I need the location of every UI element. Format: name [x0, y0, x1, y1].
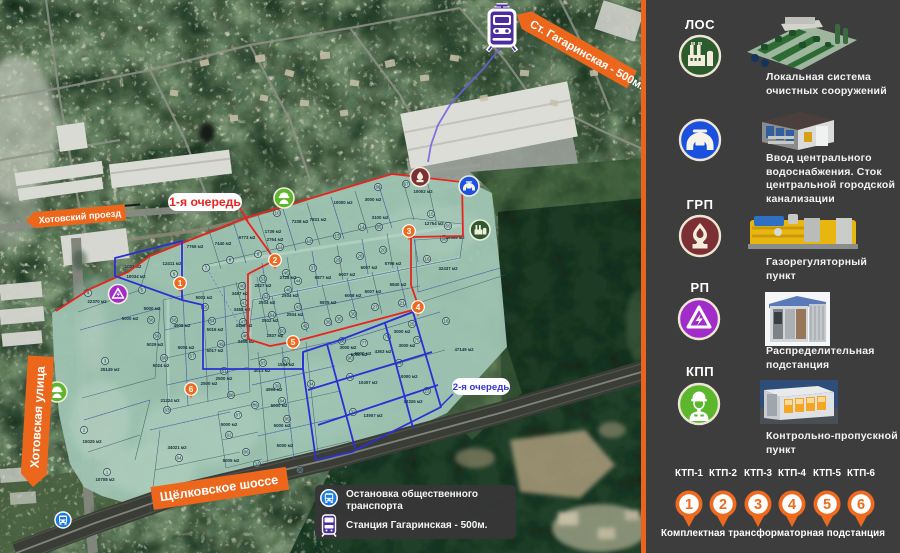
svg-text:3000 м2: 3000 м2: [340, 345, 357, 350]
svg-text:5005 м2: 5005 м2: [223, 458, 240, 463]
svg-text:22370 м2: 22370 м2: [87, 299, 107, 304]
svg-text:77: 77: [361, 341, 367, 346]
svg-text:88: 88: [228, 393, 234, 398]
svg-text:40: 40: [239, 284, 245, 289]
svg-text:5024 м2: 5024 м2: [153, 363, 170, 368]
svg-text:67: 67: [403, 182, 409, 187]
svg-text:66: 66: [375, 185, 381, 190]
svg-text:21: 21: [399, 301, 405, 306]
svg-text:5016 м2: 5016 м2: [207, 327, 224, 332]
svg-text:34021 м2: 34021 м2: [167, 445, 187, 450]
svg-text:2: 2: [83, 428, 86, 433]
svg-text:1-я очередь: 1-я очередь: [169, 195, 241, 209]
svg-text:28: 28: [357, 254, 363, 259]
svg-text:41: 41: [241, 301, 247, 306]
svg-text:3: 3: [754, 497, 762, 513]
svg-text:5001 м2: 5001 м2: [196, 295, 213, 300]
svg-text:3000 м2: 3000 м2: [399, 343, 416, 348]
svg-text:5: 5: [823, 497, 831, 513]
svg-text:5000 м2: 5000 м2: [277, 443, 294, 448]
svg-text:47149 м2: 47149 м2: [454, 347, 474, 352]
svg-text:85: 85: [284, 417, 290, 422]
svg-text:1: 1: [685, 497, 693, 513]
svg-text:10708 м2: 10708 м2: [95, 477, 115, 482]
svg-text:69: 69: [445, 224, 451, 229]
svg-text:2827 м2: 2827 м2: [255, 283, 272, 288]
svg-text:1739 м2: 1739 м2: [265, 229, 282, 234]
svg-text:5: 5: [291, 337, 296, 347]
svg-text:5029 м2: 5029 м2: [147, 342, 164, 347]
svg-text:10034 м2: 10034 м2: [126, 274, 146, 279]
svg-text:56: 56: [171, 318, 177, 323]
svg-text:3457 м2: 3457 м2: [232, 291, 249, 296]
svg-text:5877 м2: 5877 м2: [315, 275, 332, 280]
svg-text:1: 1: [106, 470, 109, 475]
svg-text:5000 м2: 5000 м2: [144, 306, 161, 311]
svg-text:57: 57: [189, 354, 195, 359]
svg-text:5004 м2: 5004 м2: [178, 345, 195, 350]
svg-text:3: 3: [407, 226, 412, 236]
svg-text:2728 м2: 2728 м2: [280, 275, 297, 280]
svg-text:2932 м2: 2932 м2: [262, 318, 279, 323]
svg-text:49: 49: [218, 342, 224, 347]
svg-text:7766 м2: 7766 м2: [187, 244, 204, 249]
svg-text:43: 43: [295, 305, 301, 310]
svg-text:46: 46: [285, 288, 291, 293]
svg-text:5000 м2: 5000 м2: [271, 403, 288, 408]
svg-text:4: 4: [416, 302, 421, 312]
svg-text:5000 м2: 5000 м2: [355, 351, 372, 356]
svg-text:5017 м2: 5017 м2: [207, 348, 224, 353]
svg-text:10: 10: [274, 211, 280, 216]
svg-text:62: 62: [226, 433, 232, 438]
svg-text:18: 18: [443, 319, 449, 324]
svg-text:Станция Гагаринская - 500м.: Станция Гагаринская - 500м.: [346, 520, 488, 531]
svg-text:65: 65: [376, 225, 382, 230]
svg-text:30: 30: [350, 312, 356, 317]
svg-text:7: 7: [205, 266, 208, 271]
svg-text:2934 м2: 2934 м2: [259, 300, 276, 305]
svg-text:37: 37: [310, 266, 316, 271]
svg-text:58: 58: [148, 318, 154, 323]
svg-text:1544 м2: 1544 м2: [278, 362, 295, 367]
svg-text:75: 75: [414, 338, 420, 343]
svg-text:89: 89: [252, 403, 258, 408]
svg-text:3000 м2: 3000 м2: [394, 329, 411, 334]
svg-text:9: 9: [257, 252, 260, 257]
svg-text:12754 м2: 12754 м2: [424, 221, 444, 226]
svg-text:6008 м2: 6008 м2: [345, 293, 362, 298]
svg-text:5840 м2: 5840 м2: [390, 282, 407, 287]
svg-text:15: 15: [428, 212, 434, 217]
svg-text:87: 87: [235, 413, 241, 418]
svg-text:15025 м2: 15025 м2: [82, 439, 102, 444]
svg-text:2-я очередь: 2-я очередь: [453, 382, 510, 393]
svg-text:36: 36: [325, 320, 331, 325]
svg-text:12411 м2: 12411 м2: [163, 261, 182, 266]
svg-text:1: 1: [178, 278, 183, 288]
svg-text:6: 6: [173, 272, 176, 277]
svg-text:21224 м2: 21224 м2: [160, 398, 180, 403]
svg-text:52: 52: [263, 295, 269, 300]
svg-text:3: 3: [104, 359, 107, 364]
svg-text:9773 м2: 9773 м2: [239, 235, 256, 240]
svg-text:38: 38: [297, 468, 303, 473]
svg-text:7238 м2: 7238 м2: [292, 219, 309, 224]
svg-text:6: 6: [189, 384, 194, 394]
svg-text:64: 64: [176, 456, 182, 461]
svg-text:54: 54: [209, 319, 215, 324]
svg-text:20: 20: [380, 248, 386, 253]
svg-text:13: 13: [334, 234, 340, 239]
svg-text:5000 м2: 5000 м2: [122, 316, 139, 321]
svg-text:10002 м2: 10002 м2: [413, 189, 433, 194]
svg-text:6007 м2: 6007 м2: [365, 289, 382, 294]
svg-text:86: 86: [243, 450, 249, 455]
svg-text:60: 60: [161, 356, 167, 361]
svg-text:3458 м2: 3458 м2: [236, 323, 253, 328]
svg-text:59: 59: [154, 334, 160, 339]
svg-text:2934 м2: 2934 м2: [282, 293, 299, 298]
svg-text:34: 34: [308, 382, 314, 387]
svg-text:2500 м2: 2500 м2: [201, 381, 218, 386]
svg-text:5: 5: [141, 288, 144, 293]
svg-text:63: 63: [164, 408, 170, 413]
svg-text:6007 м2: 6007 м2: [361, 265, 378, 270]
svg-text:7440 м2: 7440 м2: [215, 241, 232, 246]
svg-text:2500 м2: 2500 м2: [216, 376, 233, 381]
svg-text:3000 м2: 3000 м2: [365, 197, 382, 202]
svg-text:16: 16: [424, 257, 430, 262]
svg-text:5000 м2: 5000 м2: [274, 423, 291, 428]
svg-text:25: 25: [409, 322, 415, 327]
svg-text:8: 8: [229, 258, 232, 263]
svg-text:53: 53: [260, 277, 266, 282]
svg-text:5796 м2: 5796 м2: [385, 261, 402, 266]
svg-text:2: 2: [719, 497, 727, 513]
svg-text:4908 м2: 4908 м2: [174, 323, 191, 328]
svg-text:5000 м2: 5000 м2: [221, 422, 238, 427]
svg-text:4: 4: [788, 497, 796, 513]
svg-text:10000 м2: 10000 м2: [398, 374, 418, 379]
svg-text:27: 27: [372, 305, 378, 310]
svg-text:25149 м2: 25149 м2: [100, 367, 120, 372]
svg-text:12: 12: [306, 239, 312, 244]
svg-text:7831 м2: 7831 м2: [310, 217, 327, 222]
svg-text:13907 м2: 13907 м2: [363, 413, 383, 418]
svg-text:6: 6: [857, 497, 865, 513]
svg-text:6007 м2: 6007 м2: [339, 272, 356, 277]
svg-text:11: 11: [278, 245, 283, 250]
svg-text:33: 33: [254, 462, 260, 467]
svg-text:2837 м2: 2837 м2: [267, 333, 284, 338]
svg-text:51: 51: [269, 313, 275, 318]
svg-text:10407 м2: 10407 м2: [358, 380, 378, 385]
svg-text:2934 м2: 2934 м2: [287, 312, 304, 317]
svg-text:42: 42: [302, 324, 308, 329]
svg-text:5875 м2: 5875 м2: [320, 300, 337, 305]
svg-text:3100 м2: 3100 м2: [372, 215, 389, 220]
svg-text:транспорта: транспорта: [346, 501, 403, 512]
svg-text:32437 м2: 32437 м2: [438, 266, 458, 271]
svg-text:4998 м2: 4998 м2: [266, 387, 283, 392]
svg-text:4363 м2: 4363 м2: [375, 349, 392, 354]
svg-text:83: 83: [260, 361, 266, 366]
svg-text:Остановка общественного: Остановка общественного: [346, 488, 478, 500]
svg-text:10000 м2: 10000 м2: [333, 200, 353, 205]
svg-text:2764 м2: 2764 м2: [267, 237, 284, 242]
svg-text:35: 35: [336, 317, 342, 322]
svg-text:2: 2: [273, 255, 278, 265]
svg-text:29: 29: [335, 258, 341, 263]
svg-text:14: 14: [359, 225, 365, 230]
